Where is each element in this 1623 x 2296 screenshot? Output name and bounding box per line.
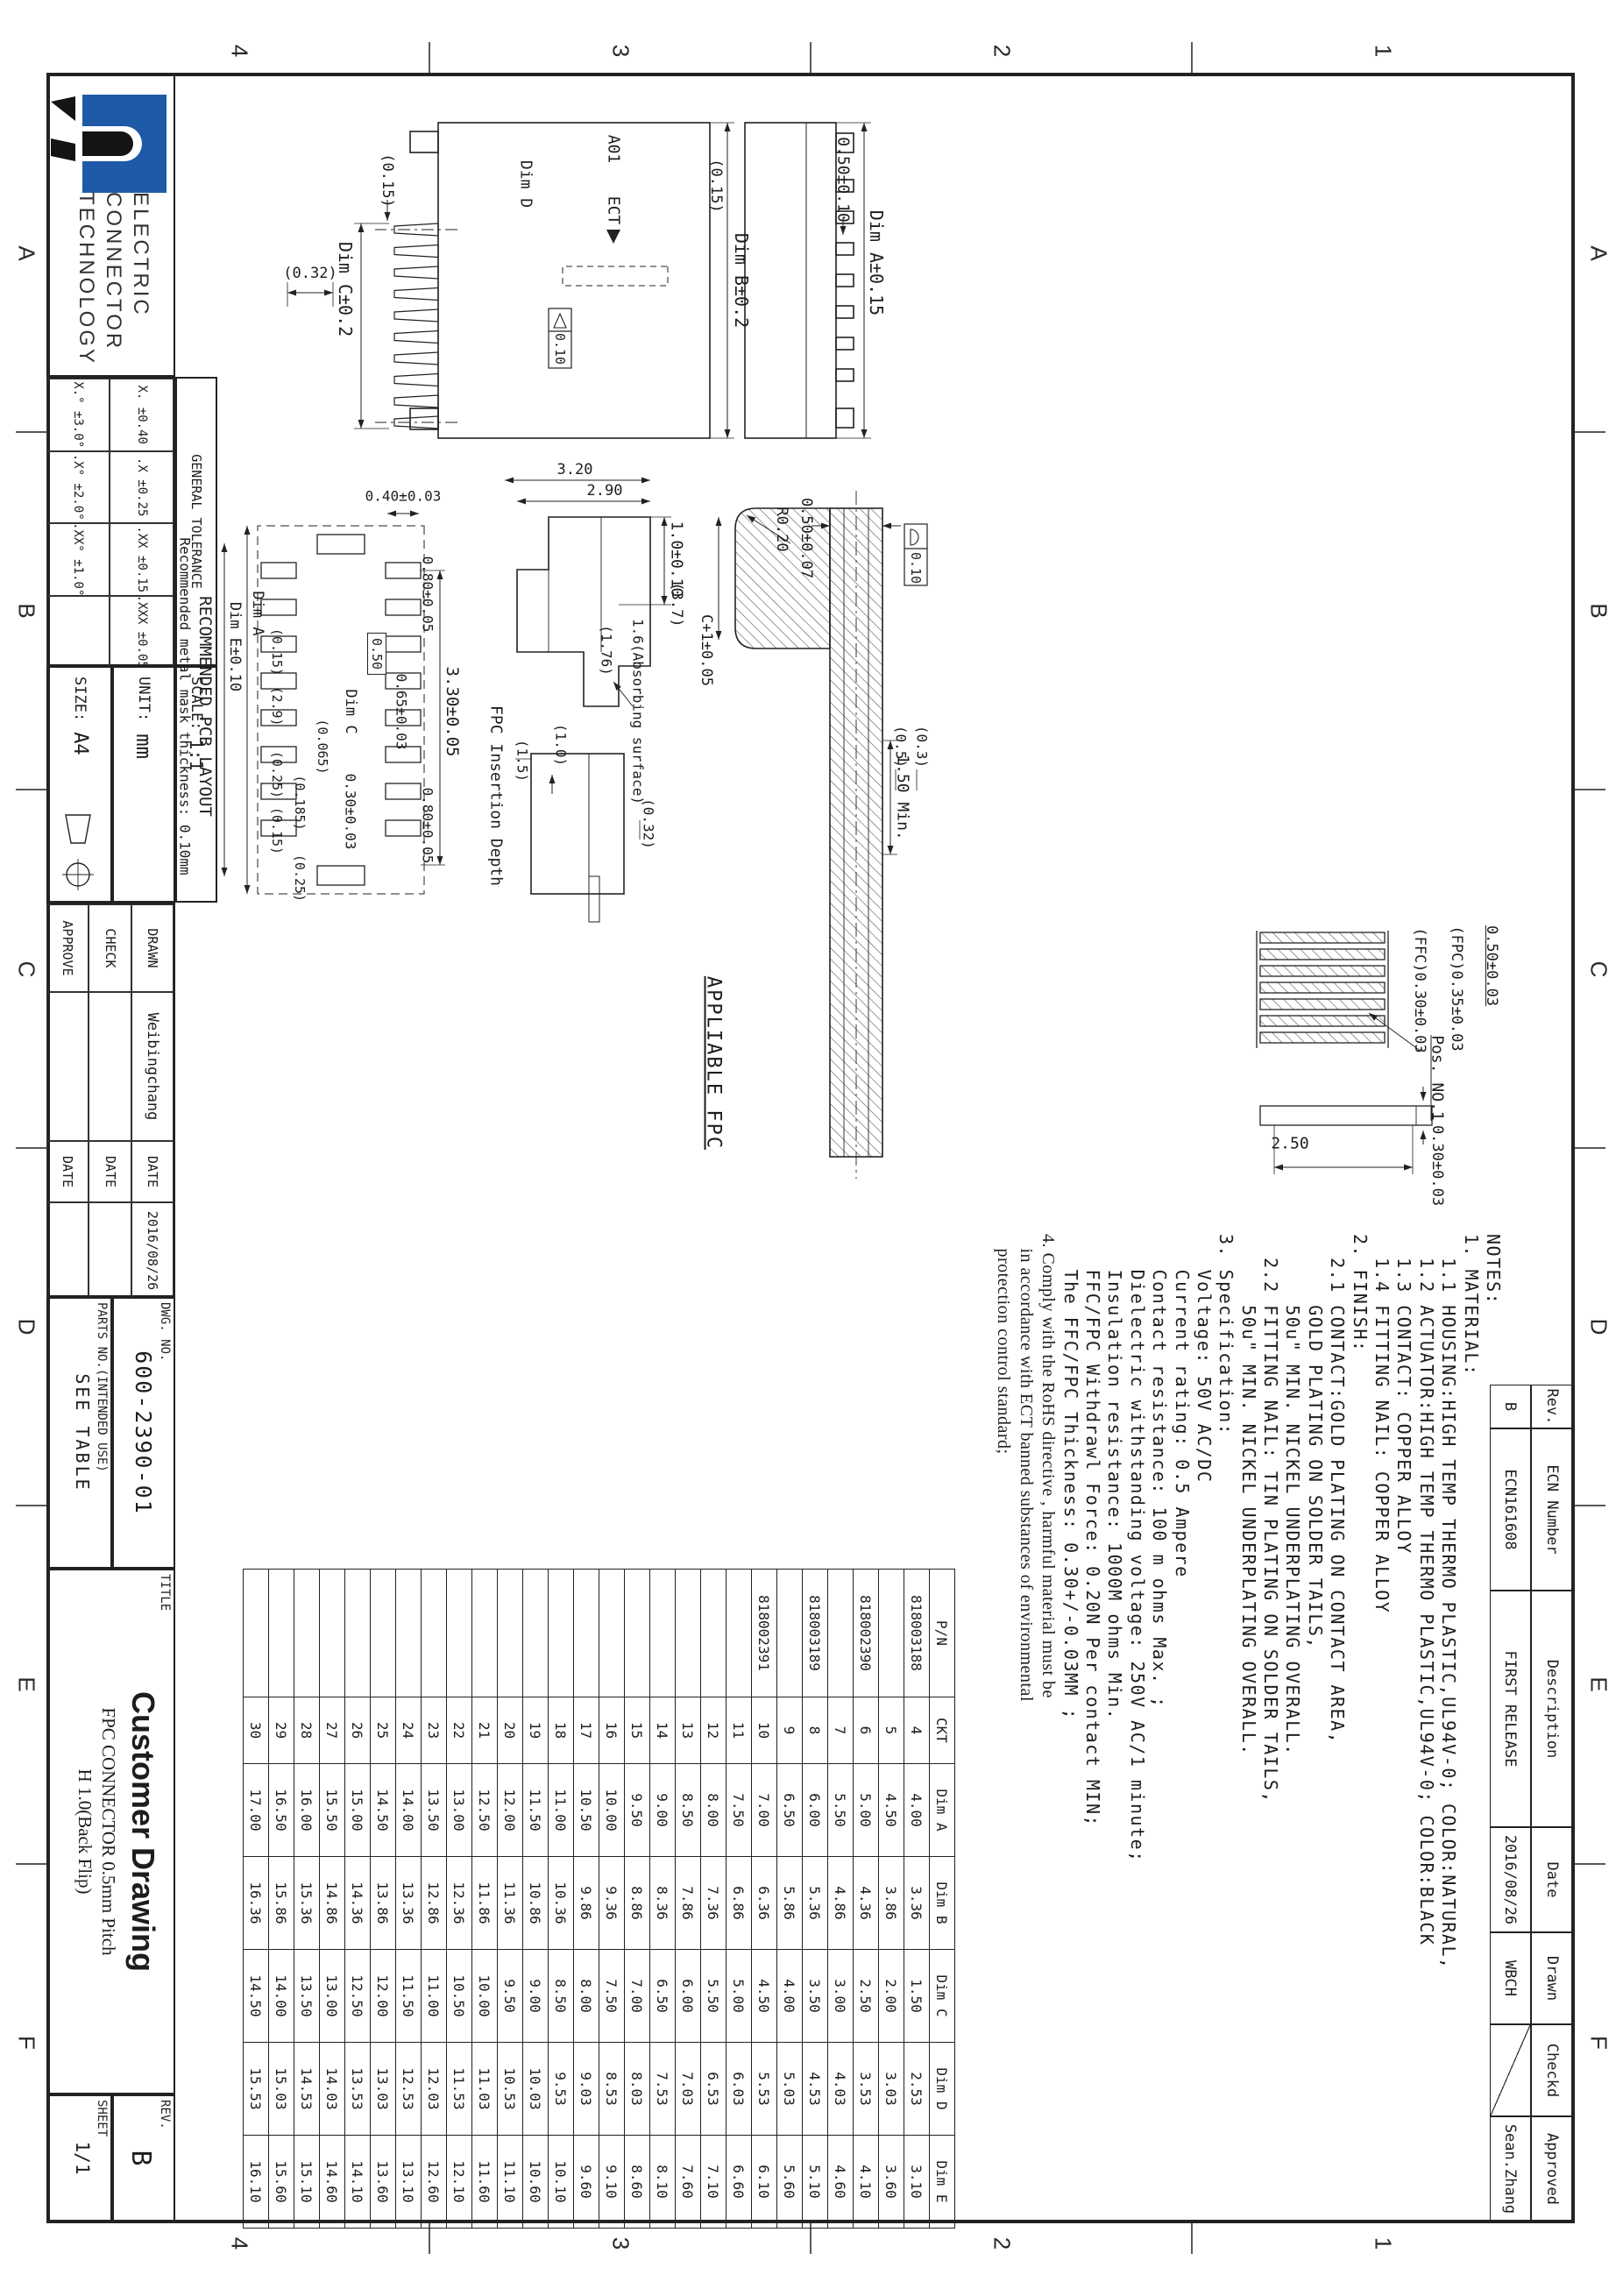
dim-table-cell: 13.36 xyxy=(396,1857,422,1950)
dimension-label: 3.30±0.05 xyxy=(443,667,462,757)
sign-label: DRAWN xyxy=(131,904,174,992)
dimension-label: 0.50±0.07 xyxy=(797,498,815,578)
dim-table-cell: 8.60 xyxy=(625,2136,650,2229)
dim-table-cell: 1.50 xyxy=(904,1950,930,2043)
note-line: 4. Comply with the RoHS directive , harm… xyxy=(1037,1234,1059,2215)
dimension-label: 3.20 xyxy=(557,461,593,478)
dim-table-cell: 12.03 xyxy=(422,2043,447,2136)
zone-col-label: A xyxy=(1585,245,1612,260)
dim-table-cell xyxy=(701,1570,726,1697)
dimension-label: 0.30±0.03 xyxy=(1428,1125,1446,1206)
dim-table-cell: 7.53 xyxy=(650,2043,676,2136)
dimension-label: (0.15) xyxy=(379,153,396,207)
parts-label: PARTS NO.(INTENDED USE) xyxy=(93,1299,110,1567)
note-line: 1.3 CONTACT: COPPER ALLOY xyxy=(1393,1234,1414,2215)
revision-header: Approved xyxy=(1531,2116,1573,2222)
dimension-label: APPLIABLE FPC xyxy=(703,976,725,1150)
sign-value: 2016/08/26 xyxy=(131,1202,174,1299)
rev-cell: REV. B xyxy=(112,2094,175,2222)
dim-table-cell: 11.53 xyxy=(447,2043,472,2136)
dim-table-cell: 7.50 xyxy=(726,1764,752,1857)
dim-table-cell: 5.03 xyxy=(777,2043,803,2136)
dim-table-cell: 6.50 xyxy=(650,1950,676,2043)
title-label: TITLE xyxy=(156,1570,174,1614)
dim-table-header: P/N xyxy=(930,1570,955,1697)
note-line: The FFC/FPC Thickness: 0.30+/-0.03MM ; xyxy=(1059,1234,1081,2215)
dim-table-cell: 11.00 xyxy=(422,1950,447,2043)
rev-label: REV. xyxy=(156,2096,174,2220)
sheet-cell: SHEET 1/1 xyxy=(48,2094,112,2222)
note-line: GOLD PLATING ON SOLDER TAILS, xyxy=(1303,1234,1325,2215)
dim-table-row: 54.503.862.003.033.60 xyxy=(879,1570,904,2229)
dimension-label: Dim E±0.10 xyxy=(226,602,244,691)
dimension-label: Dim A±0.15 xyxy=(866,210,887,315)
dim-table-cell: 5.00 xyxy=(854,1764,879,1857)
dim-table-cell: 8 xyxy=(803,1697,828,1764)
dim-table-cell: 818003188 xyxy=(904,1570,930,1697)
dim-table-cell: 7 xyxy=(828,1697,854,1764)
zone-col-label: D xyxy=(13,1319,40,1336)
dim-table-cell xyxy=(472,1570,498,1697)
dim-table-cell: 2.50 xyxy=(854,1950,879,2043)
dim-table-cell: 10.03 xyxy=(523,2043,549,2136)
dimension-label: (0.15) xyxy=(269,807,285,854)
dimension-label: (0.15) xyxy=(707,159,725,212)
dim-table-row: 96.505.864.005.035.60 xyxy=(777,1570,803,2229)
zone-col-label: B xyxy=(13,603,40,618)
dim-table-cell: 15.00 xyxy=(345,1764,371,1857)
dim-table-cell: 8.86 xyxy=(625,1857,650,1950)
dim-table-cell: 15.10 xyxy=(294,2136,320,2229)
note-line: Insulation resistance: 1000M ohms Min. xyxy=(1103,1234,1125,2215)
dim-table-cell: 14.00 xyxy=(396,1764,422,1857)
note-line: NOTES: xyxy=(1482,1234,1504,2215)
sign-value xyxy=(89,992,131,1141)
revision-header: Checkd xyxy=(1531,2024,1573,2116)
dimension-label: 0.50±0.03 xyxy=(1483,925,1500,1006)
dim-table-row: 2213.0012.3610.5011.5312.10 xyxy=(447,1570,472,2229)
dim-table-cell: 5.36 xyxy=(803,1857,828,1950)
dim-table-cell: 15 xyxy=(625,1697,650,1764)
note-line: 2.2 FITTING NAIL: TIN PLATING ON SOLDER … xyxy=(1259,1234,1281,2215)
dim-table-cell xyxy=(498,1570,523,1697)
zone-row-label: 3 xyxy=(607,2237,634,2250)
note-line: 1.2 ACTUATOR:HIGH TEMP THERMO PLASTIC,UL… xyxy=(1414,1234,1436,2215)
dim-table-cell: 5 xyxy=(879,1697,904,1764)
dim-table-cell: 818003189 xyxy=(803,1570,828,1697)
company-line: CONNECTOR xyxy=(100,192,127,365)
dim-table-cell: 24 xyxy=(396,1697,422,1764)
dimension-label: (0.32) xyxy=(283,265,337,282)
sheet-value: 1/1 xyxy=(72,2096,93,2220)
dim-table-cell: 11.60 xyxy=(472,2136,498,2229)
dim-table-cell: 25 xyxy=(371,1697,396,1764)
dim-table-cell: 4.03 xyxy=(828,2043,854,2136)
dim-table-cell xyxy=(625,1570,650,1697)
dim-table-row: 75.504.863.004.034.60 xyxy=(828,1570,854,2229)
drawing-subtitle-1: FPC CONNECTOR 0.5mm Pitch xyxy=(97,1570,119,2093)
dim-table-row: 2112.5011.8610.0011.0311.60 xyxy=(472,1570,498,2229)
size-cell: SIZE: A4 xyxy=(48,666,112,903)
dimension-label: (0.15) xyxy=(269,628,285,676)
unit-value: mm xyxy=(131,733,156,759)
dimension-label: (0.25) xyxy=(269,751,285,798)
dimension-label: (0.32) xyxy=(641,798,657,849)
dim-table-header: Dim B xyxy=(930,1857,955,1950)
dimension-label: 0.80±0.05 xyxy=(420,556,436,633)
dim-table-row: 2514.5013.8612.0013.0313.60 xyxy=(371,1570,396,2229)
zone-col-label: C xyxy=(13,961,40,978)
note-line: 3. Specification: xyxy=(1215,1234,1237,2215)
zone-row-label: 2 xyxy=(989,45,1016,57)
dimension-label: (1.0) xyxy=(553,724,570,766)
dim-table-cell: 7.00 xyxy=(625,1950,650,2043)
dim-table-cell: 12.00 xyxy=(498,1764,523,1857)
dim-table-cell: 10.00 xyxy=(599,1764,625,1857)
dim-table-cell: 12.00 xyxy=(371,1950,396,2043)
dim-table-cell: 10 xyxy=(752,1697,777,1764)
dim-table-cell: 12 xyxy=(701,1697,726,1764)
dim-table-cell: 12.86 xyxy=(422,1857,447,1950)
dim-table-cell: 3.60 xyxy=(879,2136,904,2229)
dim-table-cell: 9.00 xyxy=(523,1950,549,2043)
dim-table-cell: 818002390 xyxy=(854,1570,879,1697)
dim-table-cell: 10.86 xyxy=(523,1857,549,1950)
sign-grid: DRAWNWeibingchangDATE2016/08/26CHECKDATE… xyxy=(48,903,175,1297)
dim-table-cell: 12.50 xyxy=(472,1764,498,1857)
dim-table-cell: 14 xyxy=(650,1697,676,1764)
sign-value xyxy=(46,1202,89,1299)
dim-table-cell: 11.10 xyxy=(498,2136,523,2229)
sign-label: DATE xyxy=(89,1141,131,1202)
dim-table-cell xyxy=(676,1570,701,1697)
portrait-page: AABBCCDDEEFF11223344 Rev.ECN NumberDescr… xyxy=(0,0,1623,2296)
dim-table-cell: 14.10 xyxy=(345,2136,371,2229)
dim-table-row: 3017.0016.3614.5015.5316.10 xyxy=(244,1570,269,2229)
dim-table-cell: 7.86 xyxy=(676,1857,701,1950)
dim-table-cell: 30 xyxy=(244,1697,269,1764)
tolerance-cell xyxy=(46,596,110,669)
tolerance-cell: X.° ±3.0° xyxy=(46,379,110,451)
dim-table-cell: 14.53 xyxy=(294,2043,320,2136)
dimension-label: (1.76) xyxy=(599,625,615,676)
dim-table-cell: 13.50 xyxy=(422,1764,447,1857)
dim-table-cell: 10.36 xyxy=(549,1857,574,1950)
dim-table-cell: 13.00 xyxy=(447,1764,472,1857)
dimension-label: (FFC)0.30±0.03 xyxy=(1411,927,1428,1052)
dim-table-cell xyxy=(599,1570,625,1697)
dimension-label: Dim C xyxy=(342,689,359,733)
dim-table-cell: 4.60 xyxy=(828,2136,854,2229)
dimension-label: (2.9) xyxy=(269,686,285,726)
sign-label: APPROVE xyxy=(46,904,89,992)
dim-table-row: 1811.0010.368.509.5310.10 xyxy=(549,1570,574,2229)
dim-table-cell: 2.53 xyxy=(904,2043,930,2136)
dimension-label: (0.065) xyxy=(315,719,330,774)
dim-table-cell: 10.53 xyxy=(498,2043,523,2136)
dim-table-row: 1710.509.868.009.039.60 xyxy=(574,1570,599,2229)
dimension-label: (0.3) xyxy=(914,726,931,768)
dim-table-row: 149.008.366.507.538.10 xyxy=(650,1570,676,2229)
dimension-label: 2.90 xyxy=(587,482,623,500)
dwg-label: DWG. NO. xyxy=(156,1299,174,1567)
dim-table-cell: 16 xyxy=(599,1697,625,1764)
dimension-label: (FPC)0.35±0.03 xyxy=(1448,925,1465,1051)
view-insertion xyxy=(515,754,640,922)
dim-table-cell: 8.00 xyxy=(574,1950,599,2043)
dimension-label: Dim D xyxy=(517,160,535,208)
dim-table-row: 2313.5012.8611.0012.0312.60 xyxy=(422,1570,447,2229)
dimension-label: Dim A xyxy=(249,591,266,635)
dim-table-cell: 6.86 xyxy=(726,1857,752,1950)
dim-table-cell: 22 xyxy=(447,1697,472,1764)
dim-table-cell: 3.50 xyxy=(803,1950,828,2043)
dim-table-cell: 17 xyxy=(574,1697,599,1764)
dim-table-cell: 6.00 xyxy=(676,1950,701,2043)
dim-table-cell: 4.10 xyxy=(854,2136,879,2229)
tolerance-cell: .X° ±2.0° xyxy=(46,451,110,524)
dim-table-row: 117.506.865.006.036.60 xyxy=(726,1570,752,2229)
dim-table-cell: 15.50 xyxy=(320,1764,345,1857)
drawing-sheet: AABBCCDDEEFF11223344 Rev.ECN NumberDescr… xyxy=(0,0,1623,2296)
dim-table-cell xyxy=(269,1570,294,1697)
note-line: FFC/FPC Withdrawl Force: 0.20N Per conta… xyxy=(1081,1234,1103,2215)
dim-table-row: 128.007.365.506.537.10 xyxy=(701,1570,726,2229)
dim-table-cell: 7.50 xyxy=(599,1950,625,2043)
dim-table-cell: 9.60 xyxy=(574,2136,599,2229)
dimension-label: Pos. NO.1 xyxy=(1428,1035,1447,1121)
dim-table-row: 2916.5015.8614.0015.0315.60 xyxy=(269,1570,294,2229)
dimension-table-wrap: P/NCKTDim ADim BDim CDim DDim E818003188… xyxy=(243,1569,955,2222)
note-line: 2. FINISH: xyxy=(1348,1234,1370,2215)
view-pcb-layout xyxy=(224,514,445,894)
dim-table-cell: 15.03 xyxy=(269,2043,294,2136)
dimension-label: 1.6(Absorbing surface) xyxy=(630,619,647,804)
zone-row-label: 3 xyxy=(607,45,634,57)
dim-table-cell: 11.36 xyxy=(498,1857,523,1950)
dim-table-cell: 28 xyxy=(294,1697,320,1764)
dim-table-cell: 6.10 xyxy=(752,2136,777,2229)
dim-table-row: 1610.009.367.508.539.10 xyxy=(599,1570,625,2229)
dim-table-cell: 19 xyxy=(523,1697,549,1764)
dimension-label: 0.10 xyxy=(552,333,568,365)
revision-header: Date xyxy=(1531,1827,1573,1932)
dim-table-cell: 6.60 xyxy=(726,2136,752,2229)
revision-header: ECN Number xyxy=(1531,1428,1573,1591)
zone-col-label: E xyxy=(13,1676,40,1691)
dimension-label: (1.5) xyxy=(514,740,531,782)
dim-table-cell: 5.86 xyxy=(777,1857,803,1950)
dim-table-cell: 13.53 xyxy=(345,2043,371,2136)
dimension-label: 0.50 xyxy=(367,633,386,675)
dim-table-cell xyxy=(422,1570,447,1697)
dim-table-header: Dim E xyxy=(930,2136,955,2229)
dim-table-cell xyxy=(574,1570,599,1697)
dim-table-cell xyxy=(650,1570,676,1697)
note-line: Current rating: 0.5 Ampere xyxy=(1170,1234,1192,2215)
title-cell: TITLE Customer Drawing FPC CONNECTOR 0.5… xyxy=(48,1569,175,2094)
dim-table-cell: 3.53 xyxy=(854,2043,879,2136)
dimension-table-body: P/NCKTDim ADim BDim CDim DDim E818003188… xyxy=(244,1570,955,2229)
dim-table-cell: 14.50 xyxy=(244,1950,269,2043)
dim-table-cell xyxy=(777,1570,803,1697)
dim-table-cell: 23 xyxy=(422,1697,447,1764)
dim-table-cell: 10.10 xyxy=(549,2136,574,2229)
titleblock-company-cell: ELECTRIC CONNECTOR TECHNOLOGY xyxy=(48,74,175,377)
note-line: 1. MATERIAL: xyxy=(1459,1234,1481,2215)
dim-table-cell: 11.03 xyxy=(472,2043,498,2136)
dim-table-cell: 5.50 xyxy=(828,1764,854,1857)
dim-table-row: 2615.0014.3612.5013.5314.10 xyxy=(345,1570,371,2229)
dim-table-cell: 13.86 xyxy=(371,1857,396,1950)
dim-table-cell: 10.00 xyxy=(472,1950,498,2043)
dim-table-cell: 3.03 xyxy=(879,2043,904,2136)
tolerance-grid: X. ±0.40.X ±0.25.XX ±0.15.XXX ±0.05X.° ±… xyxy=(48,377,175,666)
dimension-table: P/NCKTDim ADim BDim CDim DDim E818003188… xyxy=(243,1569,955,2229)
dim-table-row: 81800318986.005.363.504.535.10 xyxy=(803,1570,828,2229)
dim-table-cell: 4.00 xyxy=(904,1764,930,1857)
zone-row-label: 4 xyxy=(226,2237,253,2250)
dim-table-header: Dim C xyxy=(930,1950,955,2043)
parts-value: SEE TABLE xyxy=(72,1299,93,1567)
dim-table-cell: 26 xyxy=(345,1697,371,1764)
note-line: Voltage: 50V AC/DC xyxy=(1193,1234,1215,2215)
unit-label: UNIT: xyxy=(135,677,152,721)
dim-table-cell: 4.50 xyxy=(752,1950,777,2043)
zone-row-label: 2 xyxy=(989,2237,1016,2250)
dim-table-cell xyxy=(244,1570,269,1697)
company-line: TECHNOLOGY xyxy=(73,192,100,365)
sheet-label: SHEET xyxy=(93,2096,110,2220)
dim-table-row: 81800239065.004.362.503.534.10 xyxy=(854,1570,879,2229)
dim-table-cell: 17.00 xyxy=(244,1764,269,1857)
dim-table-cell: 7.03 xyxy=(676,2043,701,2136)
zone-col-label: F xyxy=(13,2036,40,2050)
dim-table-cell: 9.03 xyxy=(574,2043,599,2136)
dim-table-cell xyxy=(320,1570,345,1697)
dim-table-cell xyxy=(447,1570,472,1697)
dim-table-cell: 4.50 xyxy=(879,1764,904,1857)
zone-col-label: D xyxy=(1585,1319,1612,1336)
dim-table-cell xyxy=(396,1570,422,1697)
dim-table-cell: 818002391 xyxy=(752,1570,777,1697)
dimension-label: (0.25) xyxy=(292,854,308,902)
dim-table-cell: 8.53 xyxy=(599,2043,625,2136)
dim-table-cell: 11 xyxy=(726,1697,752,1764)
dim-table-row: 159.508.867.008.038.60 xyxy=(625,1570,650,2229)
dim-table-cell: 13.50 xyxy=(294,1950,320,2043)
dim-table-cell: 13.10 xyxy=(396,2136,422,2229)
dim-table-cell xyxy=(879,1570,904,1697)
dim-table-cell xyxy=(294,1570,320,1697)
unit-cell: UNIT: mm xyxy=(112,666,175,903)
tolerance-cell: .X ±0.25 xyxy=(110,451,174,524)
dim-table-cell: 9.86 xyxy=(574,1857,599,1950)
dim-table-cell: 8.03 xyxy=(625,2043,650,2136)
dim-table-cell: 15.60 xyxy=(269,2136,294,2229)
dim-table-cell: 27 xyxy=(320,1697,345,1764)
note-line: 50u" MIN. NICKEL UNDERPLATING OVERALL. xyxy=(1237,1234,1258,2215)
dim-table-cell: 21 xyxy=(472,1697,498,1764)
revision-header: Description xyxy=(1531,1591,1573,1827)
dim-table-cell: 18 xyxy=(549,1697,574,1764)
dim-table-cell: 3.00 xyxy=(828,1950,854,2043)
dim-table-cell: 9.10 xyxy=(599,2136,625,2229)
dim-table-cell: 6.36 xyxy=(752,1857,777,1950)
note-line: 50u" MIN. NICKEL UNDERPLATING OVERALL. xyxy=(1281,1234,1303,2215)
dim-table-cell: 15.36 xyxy=(294,1857,320,1950)
dim-table-cell: 10.60 xyxy=(523,2136,549,2229)
drawing-title: Customer Drawing xyxy=(124,1570,161,2093)
dim-table-cell: 11.50 xyxy=(396,1950,422,2043)
zone-row-label: 4 xyxy=(226,45,253,57)
dwg-number: 600-2390-01 xyxy=(131,1299,156,1567)
tolerance-cell: .XX ±0.15 xyxy=(110,523,174,596)
dim-table-cell: 12.60 xyxy=(422,2136,447,2229)
dim-table-cell: 3.10 xyxy=(904,2136,930,2229)
dim-table-cell: 8.10 xyxy=(650,2136,676,2229)
dim-table-cell: 14.36 xyxy=(345,1857,371,1950)
dim-table-row: 81800318844.003.361.502.533.10 xyxy=(904,1570,930,2229)
dim-table-cell: 7.36 xyxy=(701,1857,726,1950)
dim-table-row: 2715.5014.8613.0014.0314.60 xyxy=(320,1570,345,2229)
dim-table-cell: 5.53 xyxy=(752,2043,777,2136)
dim-table-cell: 9.36 xyxy=(599,1857,625,1950)
dim-table-cell: 6.53 xyxy=(701,2043,726,2136)
dimension-label: ECT xyxy=(605,196,623,225)
dim-table-cell: 9.50 xyxy=(498,1950,523,2043)
dimension-label: Recommended metal mask thickness: 0.10mm xyxy=(177,537,194,875)
dim-table-cell xyxy=(726,1570,752,1697)
zone-col-label: C xyxy=(1585,961,1612,978)
notes-block: NOTES:1. MATERIAL: 1.1 HOUSING:HIGH TEMP… xyxy=(992,1234,1504,2215)
tolerance-cell: X. ±0.40 xyxy=(110,379,174,451)
tolerance-cell: .XXX ±0.05 xyxy=(110,596,174,669)
dim-table-cell: 29 xyxy=(269,1697,294,1764)
dim-table-row: 2414.0013.3611.5012.5313.10 xyxy=(396,1570,422,2229)
dim-table-header: Dim A xyxy=(930,1764,955,1857)
dim-table-cell: 12.50 xyxy=(345,1950,371,2043)
tolerance-cell: .XX° ±1.0° xyxy=(46,523,110,596)
drawing-subtitle-2: H 1.0(Back Flip) xyxy=(74,1570,96,2093)
dimension-label: (0.5) xyxy=(893,726,910,768)
dim-table-cell: 6 xyxy=(854,1697,879,1764)
sign-value xyxy=(46,992,89,1141)
size-label: SIZE: xyxy=(72,677,89,721)
dim-table-cell xyxy=(371,1570,396,1697)
sign-label: CHECK xyxy=(89,904,131,992)
note-line: Contact resistance: 100 m ohms Max. ; xyxy=(1148,1234,1170,2215)
revision-header: Drawn xyxy=(1531,1932,1573,2024)
dim-table-cell: 6.00 xyxy=(803,1764,828,1857)
dim-table-cell: 14.50 xyxy=(371,1764,396,1857)
dim-table-cell: 13.03 xyxy=(371,2043,396,2136)
dimension-label: RECOMMENDED PCB LAYOUT xyxy=(195,596,215,817)
dim-table-cell xyxy=(345,1570,371,1697)
dim-table-cell: 16.10 xyxy=(244,2136,269,2229)
dim-table-cell: 12.36 xyxy=(447,1857,472,1950)
dimension-label: Dim C±0.2 xyxy=(335,242,356,337)
dim-table-cell xyxy=(828,1570,854,1697)
dim-table-row: 138.507.866.007.037.60 xyxy=(676,1570,701,2229)
dim-table-header-row: P/NCKTDim ADim BDim CDim DDim E xyxy=(930,1570,955,2229)
dimension-label: 0.50±0.10 xyxy=(834,137,853,223)
dim-table-cell: 15.53 xyxy=(244,2043,269,2136)
dim-table-header: Dim D xyxy=(930,2043,955,2136)
dim-table-cell: 11.50 xyxy=(523,1764,549,1857)
zone-col-label: F xyxy=(1585,2036,1612,2050)
dimension-label: 2.50 xyxy=(1271,1135,1308,1153)
